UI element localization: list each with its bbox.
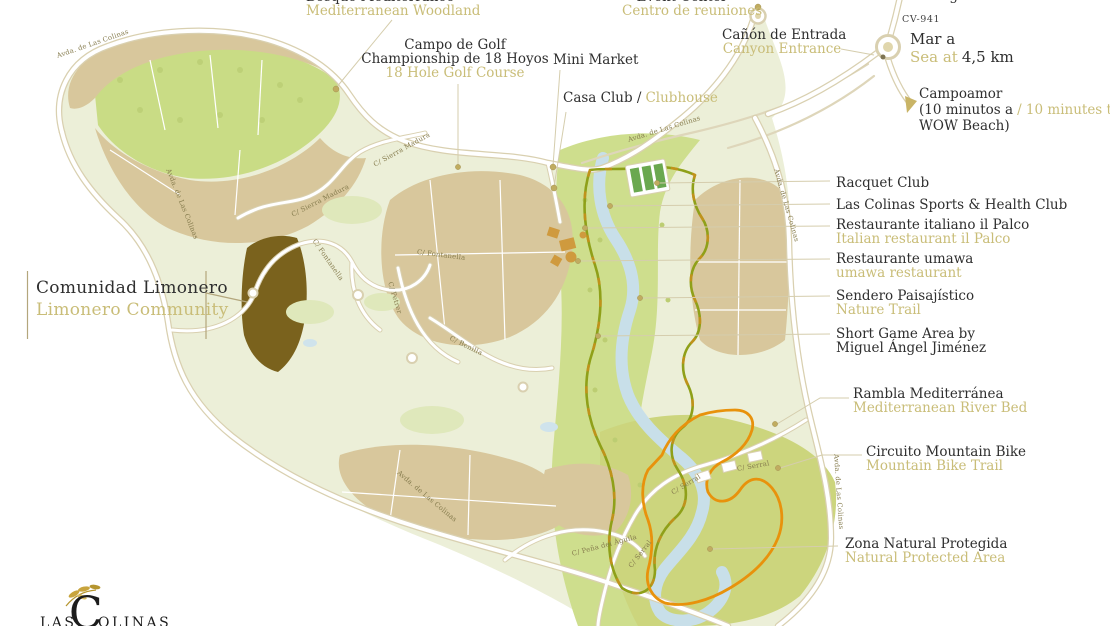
label-il-palco: Restaurante italiano il Palco Italian re… [836, 218, 1029, 246]
label-en: 18 Hole Golf Course [325, 66, 585, 80]
label-es: Restaurante umawa [836, 252, 973, 266]
label-line2-en: / 10 minutes to [1017, 102, 1110, 118]
marker-umawa [575, 258, 580, 263]
label-short-game-area: Short Game Area by Miguel Ángel Jiménez [836, 327, 986, 355]
label-en: Limonero Community [36, 299, 229, 321]
label-line1: Campoamor [919, 86, 1110, 102]
label-en: Italian restaurant il Palco [836, 232, 1029, 246]
label-en: Natural Protected Area [845, 551, 1007, 565]
label-es: Circuito Mountain Bike [866, 445, 1026, 459]
label-en: Mountain Bike Trail [866, 459, 1026, 473]
label-bosque-mediterraneo: Bosque Mediterráneo Mediterranean Woodla… [306, 0, 480, 18]
marker-il-palco [582, 225, 587, 230]
marker-short-game [595, 333, 600, 338]
label-mini-market: Mini Market [553, 53, 638, 67]
label-racquet-club: Racquet Club [836, 176, 929, 190]
label-en: Clubhouse [645, 90, 717, 106]
label-san-miguel: San Miguel de Salinas [901, 0, 1054, 3]
label-es: Comunidad Limonero [36, 277, 229, 299]
label-es: Zona Natural Protegida [845, 537, 1007, 551]
logo-word-olinas: OLINAS [98, 615, 171, 626]
marker-bosque [333, 86, 339, 92]
label-sea-distance: Mar a Sea at4,5 km [910, 30, 1014, 66]
marker-campo-golf [455, 164, 460, 169]
golf-pond [303, 339, 317, 347]
label-es: Centro de reuniones [622, 4, 742, 18]
label-es: Restaurante italiano il Palco [836, 218, 1029, 232]
marker-mini-market [550, 164, 556, 170]
campoamor-direction-arrow-icon [905, 96, 917, 113]
label-distance: 4,5 km [962, 48, 1014, 66]
label-canyon-entrance: Cañón de Entrada Canyon Entrance [722, 28, 842, 56]
canyon-leader [841, 49, 874, 55]
marker-rambla [772, 421, 777, 426]
marker-zona [707, 546, 712, 551]
label-rambla-mediterranea: Rambla Mediterránea Mediterranean River … [853, 387, 1027, 415]
label-natural-protected-area: Zona Natural Protegida Natural Protected… [845, 537, 1007, 565]
golf-pond [540, 422, 558, 432]
label-line2-es: (10 minutos a [919, 102, 1013, 118]
label-event-center: Event Center Centro de reuniones [622, 0, 742, 18]
label-en: Mediterranean Woodland [306, 4, 480, 18]
label-en: Sea at [910, 48, 958, 66]
label-es: Mar a [910, 30, 1014, 48]
label-sendero-paisajistico: Sendero Paisajístico Nature Trail [836, 289, 974, 317]
label-campo-de-golf: Campo de Golf Championship de 18 Hoyos 1… [325, 38, 585, 80]
marker-mtb [775, 465, 780, 470]
label-es: Sendero Paisajístico [836, 289, 974, 303]
label-es: Cañón de Entrada [722, 28, 842, 42]
marker-casa-club [551, 185, 557, 191]
label-comunidad-limonero: Comunidad Limonero Limonero Community [36, 277, 229, 321]
tennis-courts [625, 159, 670, 197]
marker-sendero [637, 295, 642, 300]
marker-entrance [881, 55, 886, 60]
label-casa-club: Casa Club /Clubhouse [563, 91, 718, 105]
label-line1: Short Game Area by [836, 327, 986, 341]
mini-market-leader [553, 70, 560, 166]
label-es-line1: Campo de Golf [325, 38, 585, 52]
label-sports-health-club: Las Colinas Sports & Health Club [836, 198, 1067, 212]
label-mountain-bike: Circuito Mountain Bike Mountain Bike Tra… [866, 445, 1026, 473]
label-en: umawa restaurant [836, 266, 973, 280]
label-es: Casa Club / [563, 90, 641, 106]
label-en: Canyon Entrance [722, 42, 842, 56]
label-line3: WOW Beach) [919, 118, 1110, 134]
label-line2: Miguel Ángel Jiménez [836, 341, 986, 355]
label-es-line2: Championship de 18 Hoyos [325, 52, 585, 66]
resort-map-canvas: Bosque Mediterráneo Mediterranean Woodla… [0, 0, 1110, 626]
marker-sports-club [607, 203, 612, 208]
label-es: Rambla Mediterránea [853, 387, 1027, 401]
marker-racquet [654, 180, 659, 185]
label-en: Mediterranean River Bed [853, 401, 1027, 415]
label-en: Nature Trail [836, 303, 974, 317]
label-road-cv941: CV-941 [902, 14, 940, 25]
label-umawa: Restaurante umawa umawa restaurant [836, 252, 973, 280]
label-campoamor: Campoamor (10 minutos a/ 10 minutes to W… [919, 86, 1110, 134]
